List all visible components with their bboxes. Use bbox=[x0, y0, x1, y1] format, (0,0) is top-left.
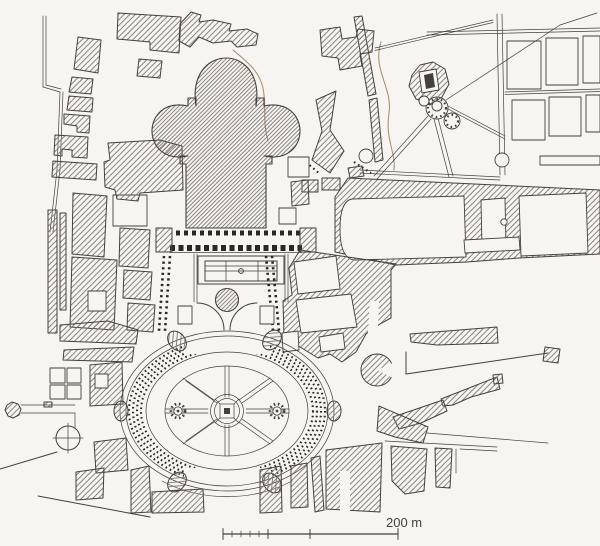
courtyard bbox=[519, 193, 588, 256]
garden-parterre bbox=[586, 95, 600, 132]
palace-band-north bbox=[335, 178, 600, 265]
garden-parterre bbox=[512, 100, 545, 140]
garden-parterre bbox=[507, 41, 541, 89]
courtyard bbox=[296, 294, 357, 333]
map-drawing: 200 m bbox=[0, 0, 600, 546]
garden-parterre bbox=[549, 97, 581, 136]
garden-parterre bbox=[583, 36, 600, 83]
site-plan-map: 200 m bbox=[0, 0, 600, 546]
courtyard bbox=[294, 256, 340, 294]
scale-label: 200 m bbox=[386, 515, 422, 530]
garden-parterre bbox=[546, 38, 578, 85]
courtyard bbox=[340, 196, 466, 260]
mound bbox=[216, 289, 239, 312]
